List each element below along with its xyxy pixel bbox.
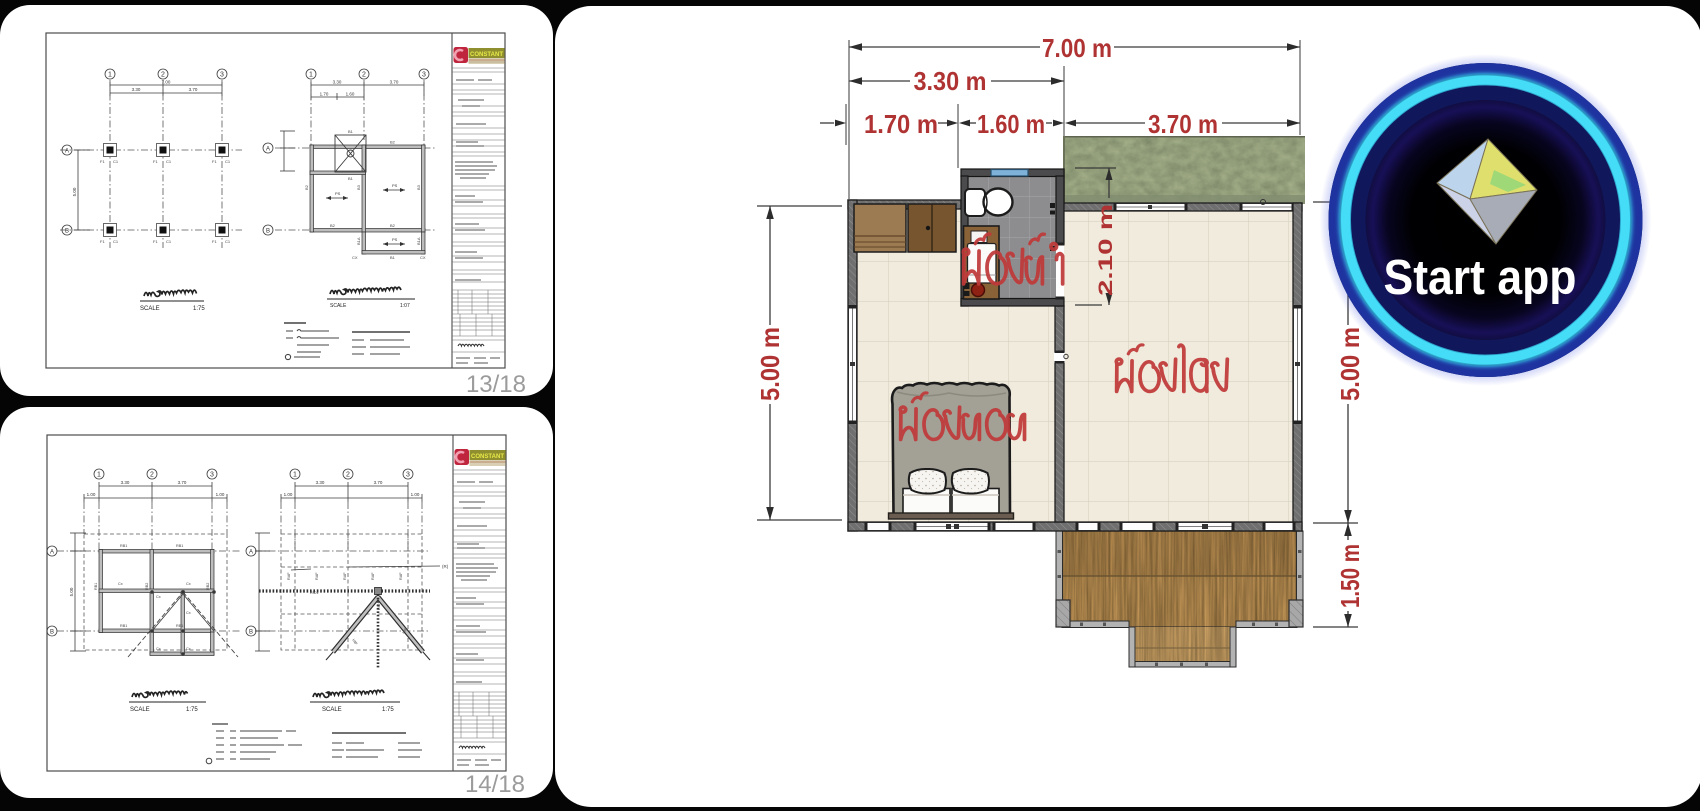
svg-text:CONSTANT: CONSTANT bbox=[471, 454, 504, 460]
svg-text:3.30 m: 3.30 m bbox=[914, 66, 987, 96]
svg-text:RB2: RB2 bbox=[206, 583, 210, 590]
svg-text:2: 2 bbox=[161, 72, 165, 79]
svg-text:RAF: RAF bbox=[287, 572, 291, 580]
svg-text:RAF: RAF bbox=[315, 572, 319, 580]
svg-text:1.60: 1.60 bbox=[346, 92, 355, 97]
svg-text:3: 3 bbox=[220, 72, 224, 79]
svg-text:SCALE: SCALE bbox=[322, 707, 342, 713]
svg-text:CX: CX bbox=[420, 255, 426, 260]
svg-text:C1: C1 bbox=[225, 159, 231, 164]
svg-text:B2: B2 bbox=[304, 184, 309, 190]
svg-text:RB1: RB1 bbox=[120, 544, 127, 548]
svg-text:5.00 m: 5.00 m bbox=[1335, 327, 1365, 401]
svg-text:A: A bbox=[65, 149, 69, 155]
svg-text:1:75: 1:75 bbox=[382, 707, 394, 713]
svg-text:SCALE: SCALE bbox=[330, 303, 347, 309]
svg-text:3.70: 3.70 bbox=[390, 80, 399, 85]
svg-text:1.00: 1.00 bbox=[87, 492, 96, 497]
svg-text:RB1: RB1 bbox=[94, 583, 98, 590]
svg-text:Cx: Cx bbox=[156, 595, 161, 599]
svg-text:3: 3 bbox=[406, 472, 410, 479]
svg-text:2: 2 bbox=[362, 72, 366, 79]
svg-text:Cx: Cx bbox=[186, 582, 191, 586]
svg-text:1.00: 1.00 bbox=[284, 492, 293, 497]
svg-text:B1A: B1A bbox=[356, 237, 361, 245]
svg-text:3.70: 3.70 bbox=[178, 480, 187, 485]
svg-text:RID: RID bbox=[377, 603, 381, 610]
svg-text:5.00: 5.00 bbox=[72, 187, 77, 196]
svg-text:F1: F1 bbox=[212, 239, 217, 244]
svg-text:2: 2 bbox=[346, 472, 350, 479]
svg-text:Cx: Cx bbox=[186, 647, 191, 651]
svg-text:C1: C1 bbox=[113, 239, 119, 244]
svg-text:F1: F1 bbox=[212, 159, 217, 164]
svg-text:RAF: RAF bbox=[399, 572, 403, 580]
svg-text:5.00 m: 5.00 m bbox=[755, 327, 785, 401]
svg-text:(R): (R) bbox=[442, 564, 449, 569]
svg-text:C1: C1 bbox=[113, 159, 119, 164]
svg-text:Cx: Cx bbox=[186, 611, 191, 615]
svg-text:3: 3 bbox=[210, 472, 214, 479]
svg-text:F1: F1 bbox=[153, 159, 158, 164]
svg-text:1: 1 bbox=[97, 472, 101, 479]
svg-text:2: 2 bbox=[150, 472, 154, 479]
svg-text:1.60 m: 1.60 m bbox=[977, 109, 1045, 139]
svg-text:A: A bbox=[249, 550, 253, 556]
svg-text:PS: PS bbox=[392, 183, 398, 188]
svg-text:RB1: RB1 bbox=[176, 624, 183, 628]
svg-text:B1A: B1A bbox=[416, 237, 421, 245]
svg-text:2.10 m: 2.10 m bbox=[1096, 204, 1117, 296]
svg-text:1.50 m: 1.50 m bbox=[1335, 544, 1365, 608]
svg-text:RB1: RB1 bbox=[120, 624, 127, 628]
svg-text:1:75: 1:75 bbox=[193, 306, 205, 312]
svg-text:PS: PS bbox=[392, 237, 398, 242]
svg-text:F1: F1 bbox=[153, 239, 158, 244]
svg-text:SCALE: SCALE bbox=[140, 306, 160, 312]
svg-text:RAF: RAF bbox=[371, 572, 375, 580]
svg-text:3.70: 3.70 bbox=[374, 480, 383, 485]
svg-text:5.00: 5.00 bbox=[69, 587, 74, 596]
svg-text:B2: B2 bbox=[390, 140, 396, 145]
svg-text:1:07: 1:07 bbox=[400, 303, 410, 309]
svg-text:1.00: 1.00 bbox=[216, 492, 225, 497]
svg-text:C1: C1 bbox=[225, 239, 231, 244]
svg-text:1: 1 bbox=[108, 72, 112, 79]
svg-text:14/18: 14/18 bbox=[465, 771, 525, 798]
svg-text:SCALE: SCALE bbox=[130, 707, 150, 713]
svg-text:3.30: 3.30 bbox=[333, 80, 342, 85]
svg-text:A: A bbox=[50, 550, 54, 556]
svg-text:B: B bbox=[266, 229, 270, 235]
svg-text:3.30: 3.30 bbox=[132, 87, 141, 92]
svg-text:B3: B3 bbox=[356, 184, 361, 190]
svg-text:F1: F1 bbox=[100, 239, 105, 244]
svg-text:3.70 m: 3.70 m bbox=[1148, 109, 1218, 139]
svg-text:Cx: Cx bbox=[118, 582, 123, 586]
svg-text:3.30: 3.30 bbox=[121, 480, 130, 485]
svg-text:RB2: RB2 bbox=[145, 583, 149, 590]
svg-text:CONSTANT: CONSTANT bbox=[470, 52, 503, 58]
svg-text:F1: F1 bbox=[100, 159, 105, 164]
svg-text:CX: CX bbox=[352, 255, 358, 260]
svg-text:1.70: 1.70 bbox=[320, 92, 329, 97]
svg-text:3.30: 3.30 bbox=[316, 480, 325, 485]
svg-text:B2: B2 bbox=[390, 223, 396, 228]
svg-text:B: B bbox=[249, 630, 253, 636]
svg-text:B: B bbox=[50, 630, 54, 636]
svg-text:B1: B1 bbox=[390, 255, 396, 260]
svg-text:B1: B1 bbox=[348, 176, 354, 181]
svg-text:1.00: 1.00 bbox=[411, 492, 420, 497]
svg-text:1: 1 bbox=[309, 72, 313, 79]
svg-text:3.70: 3.70 bbox=[189, 87, 198, 92]
svg-text:B: B bbox=[65, 229, 69, 235]
svg-text:C1: C1 bbox=[166, 239, 172, 244]
svg-text:B2: B2 bbox=[330, 223, 336, 228]
svg-text:B1: B1 bbox=[348, 129, 354, 134]
svg-text:7.00 m: 7.00 m bbox=[1042, 33, 1112, 63]
svg-text:3: 3 bbox=[422, 72, 426, 79]
svg-text:1:75: 1:75 bbox=[186, 707, 198, 713]
svg-text:1.70 m: 1.70 m bbox=[864, 109, 938, 139]
svg-text:C1: C1 bbox=[166, 159, 172, 164]
svg-text:RAF: RAF bbox=[343, 572, 347, 580]
svg-text:A: A bbox=[266, 147, 270, 153]
svg-text:B3: B3 bbox=[416, 184, 421, 190]
svg-text:PS: PS bbox=[335, 191, 341, 196]
svg-text:RB1: RB1 bbox=[176, 544, 183, 548]
svg-text:Start app: Start app bbox=[1384, 251, 1577, 305]
svg-text:Cx: Cx bbox=[156, 647, 161, 651]
svg-text:RID1: RID1 bbox=[310, 591, 319, 595]
svg-text:13/18: 13/18 bbox=[466, 371, 526, 398]
svg-text:1: 1 bbox=[293, 472, 297, 479]
